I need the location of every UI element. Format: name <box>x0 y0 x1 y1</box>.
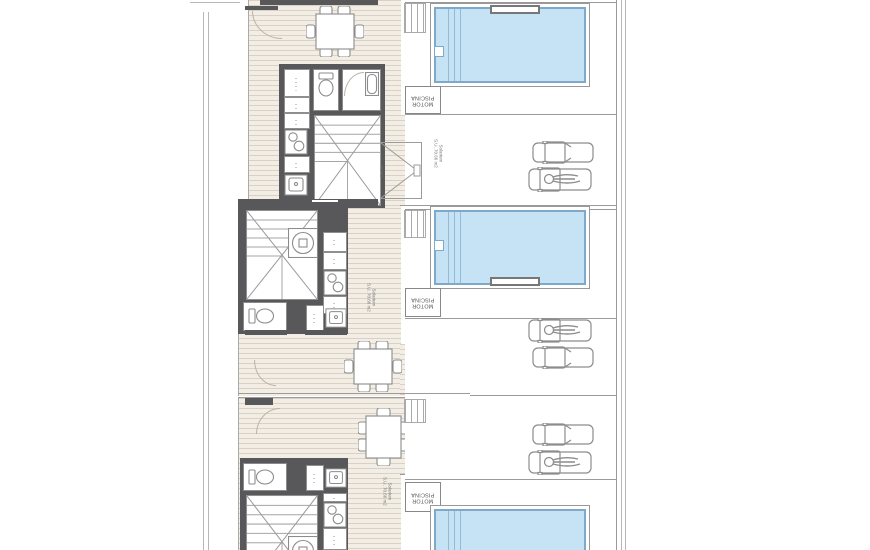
shower-area: Ducha <box>380 142 422 199</box>
pool-step-notch <box>434 46 444 57</box>
sink-icon <box>325 466 347 490</box>
kitchen-cabinet <box>284 156 310 173</box>
pool-step-line <box>448 511 449 550</box>
shower-drain-lines <box>381 143 421 198</box>
solarium-label: SolariumS.U. 70.66 m2 <box>382 461 393 521</box>
pool <box>434 7 586 83</box>
kitchen-cabinet <box>323 528 347 550</box>
kitchen-cabinet <box>284 69 310 97</box>
pool-step-line <box>460 212 461 283</box>
boundary-tick <box>190 2 240 3</box>
pool-step-notch <box>434 240 444 251</box>
pool-ladder <box>490 5 540 14</box>
left-boundary-line-inner <box>208 12 209 550</box>
motor-room-label: MOTORPISCINA <box>411 94 434 107</box>
toilet-icon <box>248 467 276 487</box>
entry-steps <box>404 399 426 423</box>
pool-step-line <box>460 9 461 81</box>
entry-steps <box>404 3 426 33</box>
yard-divider-line <box>405 479 616 480</box>
pool-step-line <box>454 212 455 283</box>
toilet-icon <box>317 72 335 98</box>
dining-table <box>306 6 364 57</box>
car-icon <box>532 346 594 369</box>
car-with-driver-icon <box>528 450 594 475</box>
solarium-label: SolariumS.U. 70.66 m2 <box>366 267 377 327</box>
left-boundary-line-outer <box>203 12 204 550</box>
pool-ladder <box>490 277 540 286</box>
right-plot-fence <box>616 0 617 550</box>
car-icon <box>532 141 594 164</box>
stove-icon <box>323 270 347 296</box>
pool-motor-room: MOTORPISCINA <box>405 86 441 114</box>
motor-room-label: MOTORPISCINA <box>411 491 434 504</box>
toilet-icon <box>248 306 276 326</box>
dining-table <box>358 408 409 466</box>
shower-label: Ducha <box>378 166 383 178</box>
stove-icon <box>323 502 347 528</box>
wall <box>245 330 287 335</box>
motor-room-label: MOTORPISCINA <box>411 296 434 309</box>
unit-separation-line <box>470 395 616 396</box>
pool <box>434 210 586 285</box>
kitchen-cabinet <box>284 113 310 129</box>
right-boundary-line-inner <box>621 0 622 550</box>
pool-step-line <box>448 212 449 283</box>
kitchen-cabinet <box>323 493 347 502</box>
kitchen-cabinet <box>306 465 324 491</box>
kitchen-cabinet <box>323 232 347 252</box>
shower-cabin-icon <box>288 228 318 258</box>
sink-icon <box>325 306 347 330</box>
yard-divider-line <box>405 114 616 115</box>
solarium-label: SolariumS.U. 70.66 m2 <box>433 123 444 183</box>
car-with-driver-icon <box>528 318 594 343</box>
pool <box>434 509 586 550</box>
shower-cabin-icon <box>288 536 318 550</box>
bathtub-icon <box>365 72 379 96</box>
unit-separation-line <box>238 393 470 394</box>
pool-step-line <box>454 9 455 81</box>
kitchen-cabinet <box>306 305 324 331</box>
pool-step-line <box>448 9 449 81</box>
pool-step-line <box>454 511 455 550</box>
wall <box>305 330 347 335</box>
pool-step-line <box>460 511 461 550</box>
car-icon <box>532 423 594 446</box>
right-boundary-line-outer <box>625 0 626 550</box>
wall <box>260 0 378 5</box>
stove-icon <box>284 129 308 155</box>
floor-plan-canvas: MOTORPISCINA Ducha Solari <box>0 0 870 550</box>
wall <box>245 398 273 405</box>
kitchen-cabinet <box>284 97 310 113</box>
pool-motor-room: MOTORPISCINA <box>405 288 441 317</box>
kitchen-cabinet <box>323 252 347 270</box>
dining-table <box>344 341 402 392</box>
car-with-driver-icon <box>528 167 594 192</box>
wall <box>245 6 278 10</box>
sink-icon <box>284 174 308 196</box>
entry-steps <box>404 210 426 238</box>
staircase <box>314 115 381 206</box>
